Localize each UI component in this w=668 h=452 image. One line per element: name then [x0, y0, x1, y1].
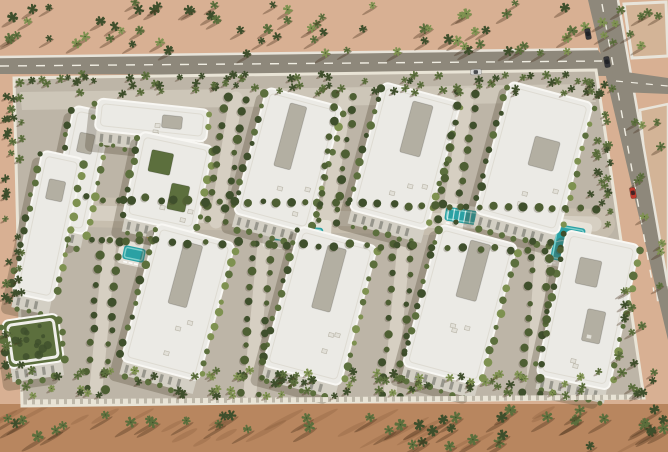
rooftop-unit — [553, 189, 559, 194]
rooftop-unit — [322, 349, 328, 354]
canopy-tree — [460, 162, 469, 171]
canopy-tree — [505, 203, 512, 210]
canopy-tree — [536, 374, 545, 383]
car-windshield — [586, 31, 591, 36]
canopy-tree — [116, 197, 122, 203]
roof-slot — [161, 115, 182, 130]
canopy-tree — [562, 205, 569, 212]
canopy-tree — [316, 244, 322, 250]
canopy-tree — [259, 358, 266, 365]
car-silver — [470, 69, 481, 75]
canopy-tree — [217, 199, 223, 205]
canopy-tree — [109, 327, 115, 333]
canopy-tree — [108, 313, 116, 321]
canopy-tree — [577, 205, 584, 212]
canopy-tree — [228, 177, 235, 184]
canopy-tree — [240, 356, 249, 365]
canopy-tree — [524, 281, 533, 290]
canopy-tree — [348, 106, 356, 114]
rooftop-unit — [188, 209, 194, 214]
canopy-tree — [232, 165, 237, 170]
canopy-tree — [87, 339, 94, 346]
canopy-tree — [210, 175, 217, 182]
canopy-tree — [428, 244, 435, 251]
aerial-render-image — [0, 0, 668, 452]
canopy-tree — [471, 90, 479, 98]
canopy-tree — [122, 237, 130, 245]
canopy-tree — [388, 286, 395, 293]
canopy-tree — [264, 285, 271, 292]
canopy-tree — [477, 205, 483, 211]
canopy-tree — [525, 315, 532, 322]
canopy-tree — [518, 202, 527, 211]
canopy-tree — [438, 186, 445, 193]
canopy-tree — [246, 284, 252, 290]
rooftop-unit — [335, 333, 341, 338]
canopy-tree — [330, 117, 339, 126]
canopy-tree — [169, 239, 176, 246]
canopy-tree — [543, 330, 550, 337]
canopy-tree — [93, 282, 99, 288]
canopy-tree — [201, 198, 210, 207]
canopy-tree — [91, 312, 98, 319]
canopy-tree — [341, 149, 350, 158]
canopy-tree — [408, 272, 414, 278]
canopy-tree — [544, 301, 552, 309]
canopy-tree — [542, 283, 550, 291]
canopy-tree — [391, 200, 398, 207]
canopy-tree — [127, 196, 136, 205]
canopy-tree — [152, 236, 159, 243]
canopy-tree — [319, 190, 326, 197]
canopy-tree — [530, 267, 536, 273]
canopy-tree — [402, 348, 408, 354]
canopy-tree — [463, 204, 469, 210]
canopy-tree — [212, 145, 221, 154]
canopy-tree — [326, 133, 333, 140]
canopy-tree — [407, 256, 414, 263]
canopy-tree — [325, 148, 331, 154]
canopy-tree — [545, 254, 554, 263]
canopy-tree — [141, 193, 149, 201]
canopy-tree — [472, 105, 479, 112]
rooftop-unit — [292, 211, 298, 216]
canopy-tree — [441, 174, 449, 182]
rooftop-unit — [422, 184, 428, 189]
canopy-tree — [378, 358, 386, 366]
canopy-tree — [465, 135, 473, 143]
canopy-tree — [337, 175, 346, 184]
canopy-tree — [444, 161, 449, 166]
rooftop-unit — [175, 326, 181, 331]
canopy-tree — [96, 251, 105, 260]
canopy-tree — [431, 201, 439, 209]
canopy-tree — [321, 174, 327, 180]
canopy-tree — [459, 178, 466, 185]
canopy-tree — [236, 124, 244, 132]
canopy-tree — [518, 388, 526, 396]
canopy-tree — [265, 240, 273, 248]
canopy-tree — [542, 315, 551, 324]
roof-slot — [575, 257, 602, 288]
vacant-plot — [624, 2, 668, 58]
canopy-tree — [524, 247, 531, 254]
canopy-tree — [446, 144, 453, 151]
canopy-tree — [105, 359, 110, 364]
canopy-tree — [158, 198, 165, 205]
canopy-tree — [242, 327, 251, 336]
canopy-tree — [203, 239, 209, 245]
canopy-tree — [230, 197, 239, 206]
rooftop-unit — [450, 323, 456, 328]
canopy-tree — [105, 341, 110, 346]
rooftop-unit — [389, 191, 395, 196]
canopy-tree — [478, 246, 485, 253]
canopy-tree — [221, 204, 229, 212]
canopy-tree — [231, 150, 237, 156]
canopy-tree — [542, 248, 549, 255]
rooftop-unit — [573, 364, 579, 369]
canopy-tree — [243, 342, 248, 347]
canopy-tree — [489, 202, 497, 210]
canopy-tree — [520, 344, 528, 352]
canopy-tree — [453, 219, 458, 224]
canopy-tree — [248, 267, 257, 276]
canopy-tree — [259, 375, 265, 381]
canopy-tree — [529, 238, 536, 245]
canopy-tree — [378, 244, 385, 251]
canopy-tree — [402, 315, 410, 323]
canopy-tree — [213, 161, 220, 168]
rooftop-unit — [180, 218, 186, 223]
rooftop-unit — [452, 328, 458, 333]
canopy-tree — [283, 242, 291, 250]
canopy-tree — [261, 317, 268, 324]
canopy-tree — [350, 93, 357, 100]
canopy-tree — [251, 241, 257, 247]
canopy-tree — [445, 245, 451, 251]
canopy-tree — [528, 301, 533, 306]
canopy-tree — [407, 288, 412, 293]
canopy-tree — [317, 201, 323, 207]
canopy-tree — [344, 137, 349, 142]
canopy-tree — [209, 189, 216, 196]
canopy-tree — [507, 247, 515, 255]
canopy-tree — [525, 328, 533, 336]
rooftop-unit — [155, 123, 160, 128]
canopy-tree — [220, 104, 228, 112]
canopy-tree — [256, 392, 262, 398]
roof-slot — [45, 179, 66, 202]
canopy-tree — [385, 330, 393, 338]
canopy-tree — [405, 203, 413, 211]
canopy-tree — [453, 120, 459, 126]
canopy-tree — [464, 146, 472, 154]
canopy-tree — [394, 242, 401, 249]
rooftop-unit — [305, 187, 311, 192]
canopy-tree — [547, 239, 554, 246]
canopy-tree — [183, 240, 192, 249]
canopy-tree — [364, 242, 370, 248]
canopy-tree — [384, 347, 390, 353]
canopy-tree — [224, 93, 233, 102]
canopy-tree — [91, 325, 99, 333]
canopy-tree — [169, 195, 178, 204]
canopy-tree — [272, 198, 281, 207]
canopy-tree — [459, 243, 467, 251]
canopy-tree — [107, 237, 113, 243]
canopy-tree — [233, 135, 242, 144]
canopy-tree — [245, 298, 253, 306]
canopy-tree — [89, 237, 95, 243]
car-windshield — [474, 70, 479, 74]
canopy-tree — [101, 385, 110, 394]
canopy-tree — [216, 133, 223, 140]
canopy-tree — [94, 265, 103, 274]
canopy-tree — [237, 389, 245, 397]
canopy-tree — [540, 346, 546, 352]
canopy-tree — [234, 237, 243, 246]
canopy-tree — [321, 163, 328, 170]
canopy-tree — [389, 270, 395, 276]
canopy-tree — [316, 217, 321, 222]
canopy-tree — [528, 254, 535, 261]
canopy-tree — [112, 267, 120, 275]
canopy-tree — [385, 300, 391, 306]
canopy-tree — [205, 216, 212, 223]
canopy-tree — [83, 193, 89, 199]
canopy-tree — [260, 343, 267, 350]
canopy-tree — [358, 198, 367, 207]
canopy-tree — [267, 270, 273, 276]
canopy-tree — [267, 256, 275, 264]
canopy-tree — [388, 253, 396, 261]
canopy-tree — [223, 219, 229, 225]
rooftop-unit — [570, 358, 576, 363]
canopy-tree — [434, 215, 442, 223]
canopy-tree — [491, 244, 498, 251]
rooftop-unit — [164, 351, 170, 356]
canopy-tree — [470, 122, 477, 129]
canopy-tree — [136, 236, 144, 244]
rooftop-unit — [160, 205, 166, 210]
canopy-tree — [249, 255, 255, 261]
canopy-tree — [100, 197, 106, 203]
rooftop-unit — [277, 186, 283, 191]
canopy-tree — [373, 200, 381, 208]
canopy-tree — [546, 267, 555, 276]
canopy-tree — [115, 253, 122, 260]
canopy-tree — [110, 283, 118, 291]
canopy-tree — [453, 102, 461, 110]
canopy-tree — [538, 361, 544, 367]
canopy-tree — [346, 239, 355, 248]
canopy-tree — [99, 237, 105, 243]
canopy-tree — [549, 205, 556, 212]
canopy-tree — [261, 198, 267, 204]
car-windshield — [631, 190, 636, 195]
canopy-tree — [340, 166, 345, 171]
canopy-tree — [557, 247, 564, 254]
rooftop-unit — [187, 320, 193, 325]
canopy-tree — [403, 333, 410, 340]
canopy-tree — [264, 300, 269, 305]
canopy-tree — [345, 200, 351, 206]
canopy-tree — [183, 196, 192, 205]
canopy-tree — [244, 316, 250, 322]
canopy-tree — [535, 203, 544, 212]
rooftop-unit — [464, 326, 470, 331]
canopy-tree — [218, 122, 225, 129]
compound-aerial-scene — [0, 0, 668, 452]
canopy-tree — [261, 329, 269, 337]
canopy-tree — [91, 297, 97, 303]
canopy-tree — [237, 107, 245, 115]
canopy-tree — [447, 204, 453, 210]
rooftop-unit — [407, 184, 413, 189]
canopy-tree — [332, 199, 340, 207]
canopy-tree — [107, 298, 116, 307]
rooftop-unit — [586, 334, 592, 339]
canopy-tree — [218, 240, 226, 248]
rooftop-unit — [328, 332, 334, 337]
canopy-tree — [87, 357, 93, 363]
canopy-tree — [386, 315, 392, 321]
canopy-tree — [244, 199, 252, 207]
canopy-tree — [287, 198, 296, 207]
canopy-tree — [333, 219, 340, 226]
canopy-tree — [299, 239, 308, 248]
canopy-tree — [520, 359, 528, 367]
roof-courtyard — [148, 149, 174, 175]
canopy-tree — [396, 360, 403, 367]
car-windshield — [605, 59, 610, 64]
canopy-tree — [330, 103, 338, 111]
canopy-tree — [418, 202, 425, 209]
canopy-tree — [243, 96, 250, 103]
canopy-tree — [330, 242, 339, 251]
canopy-tree — [456, 189, 463, 196]
canopy-tree — [409, 241, 417, 249]
canopy-tree — [348, 120, 356, 128]
canopy-tree — [447, 132, 455, 140]
canopy-tree — [404, 301, 409, 306]
canopy-tree — [302, 199, 308, 205]
rooftop-unit — [522, 191, 528, 196]
